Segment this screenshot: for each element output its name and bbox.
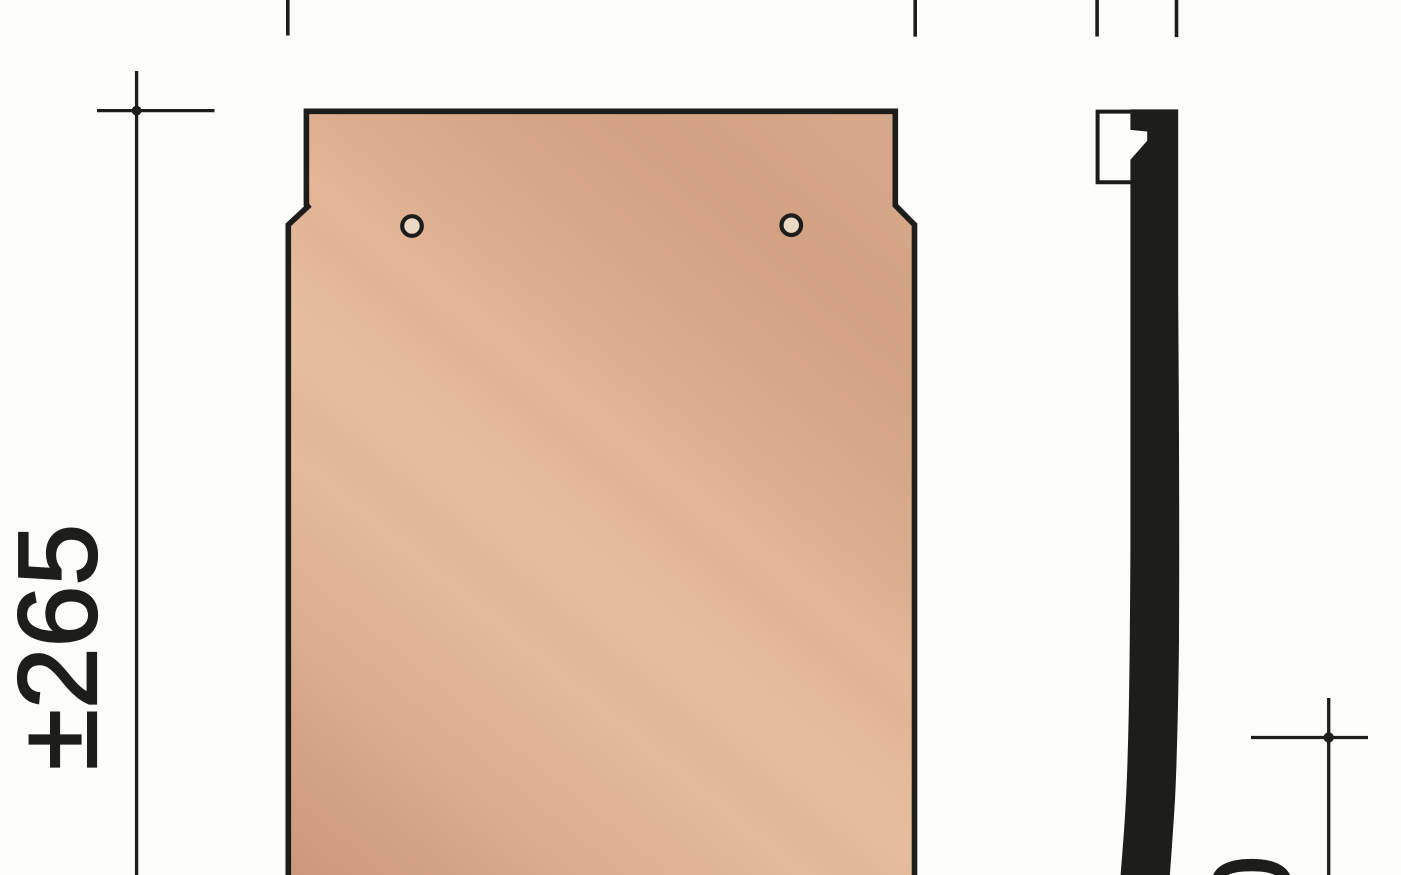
svg-text:±265: ±265 xyxy=(0,524,120,770)
svg-text:0: 0 xyxy=(1190,856,1315,875)
